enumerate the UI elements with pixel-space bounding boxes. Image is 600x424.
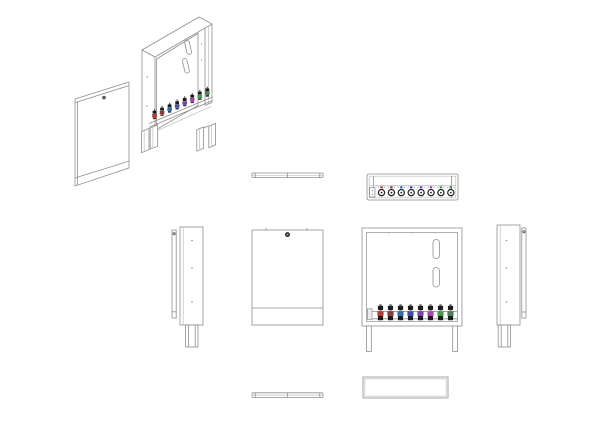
front-valve-unit [437,304,443,320]
left-side-view [172,227,203,347]
door-front-view [252,228,323,325]
iso-valve-unit [205,87,210,97]
technical-drawing-canvas [0,0,600,424]
front-valve-unit [387,304,393,320]
cabinet-front-view [362,228,462,352]
front-valve-unit [407,304,413,320]
side-cabinet-leg [498,325,510,347]
door-bottom-view [252,393,323,398]
front-valve-unit [447,304,453,320]
iso-door-panel [75,82,129,186]
side-door-edge [172,230,176,318]
side-door-edge [522,228,526,318]
technical-drawing-page [0,0,600,424]
front-valve-unit [397,304,403,320]
iso-exploded-view [75,17,216,186]
cabinet-bottom-view [363,377,448,398]
front-valve-unit [417,304,423,320]
front-cabinet-legs [367,326,458,352]
door-top-view [252,173,323,178]
cabinet-top-view [367,174,458,200]
front-valve-unit [377,304,383,320]
front-valve-unit [427,304,433,320]
front-manifold-end-bracket [367,309,372,320]
side-cabinet-panel [497,225,520,325]
right-side-view [497,225,526,347]
side-cabinet-panel [180,227,203,325]
side-cabinet-leg [186,325,198,347]
door-lock-icon [285,232,290,237]
iso-cabinet-legs [142,123,216,152]
top-manifold-end-bracket [370,188,375,197]
door-lock-pin [103,97,104,98]
